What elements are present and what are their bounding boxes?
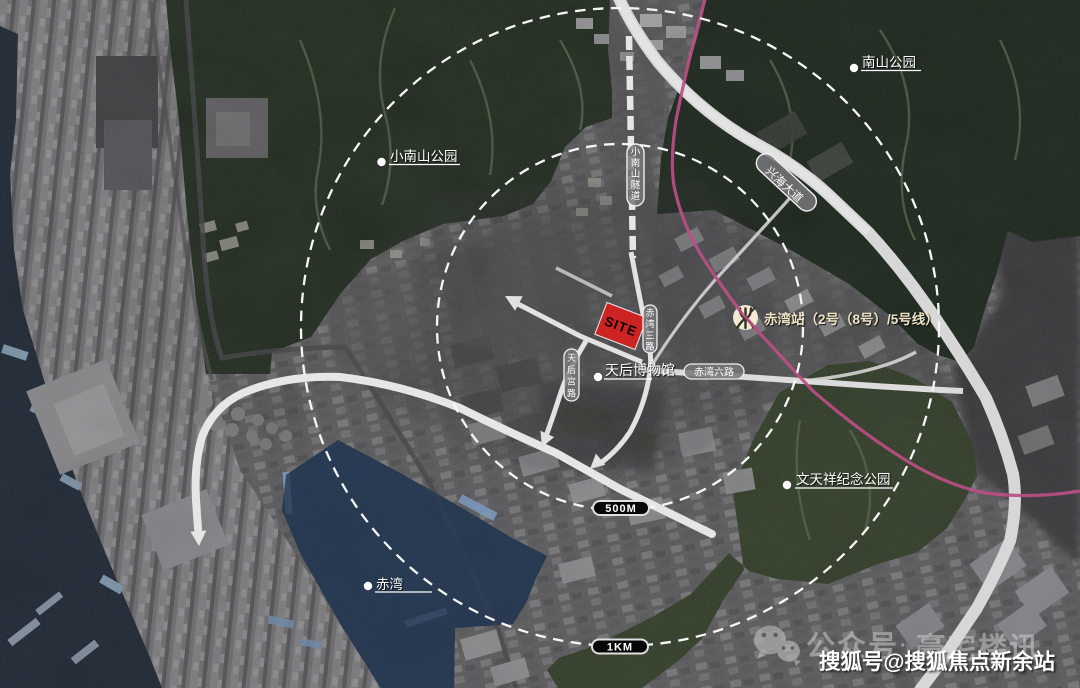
svg-text:天后宫路: 天后宫路 [567, 353, 576, 398]
svg-text:500M: 500M [605, 503, 637, 515]
svg-text:小南山隧道: 小南山隧道 [631, 147, 641, 202]
svg-text:天后博物馆: 天后博物馆 [605, 362, 675, 378]
svg-text:赤湾站（2号（8号）/5号线）: 赤湾站（2号（8号）/5号线） [764, 311, 939, 327]
svg-text:南山公园: 南山公园 [862, 55, 916, 70]
svg-text:搜狐号@搜狐焦点新余站: 搜狐号@搜狐焦点新余站 [819, 649, 1055, 674]
svg-text:1KM: 1KM [607, 642, 633, 654]
svg-text:小南山公园: 小南山公园 [390, 149, 458, 164]
svg-text:赤湾三路: 赤湾三路 [645, 308, 654, 352]
svg-text:赤湾六路: 赤湾六路 [694, 366, 734, 379]
svg-text:赤湾: 赤湾 [376, 576, 403, 592]
svg-text:文天祥纪念公园: 文天祥纪念公园 [796, 471, 891, 487]
